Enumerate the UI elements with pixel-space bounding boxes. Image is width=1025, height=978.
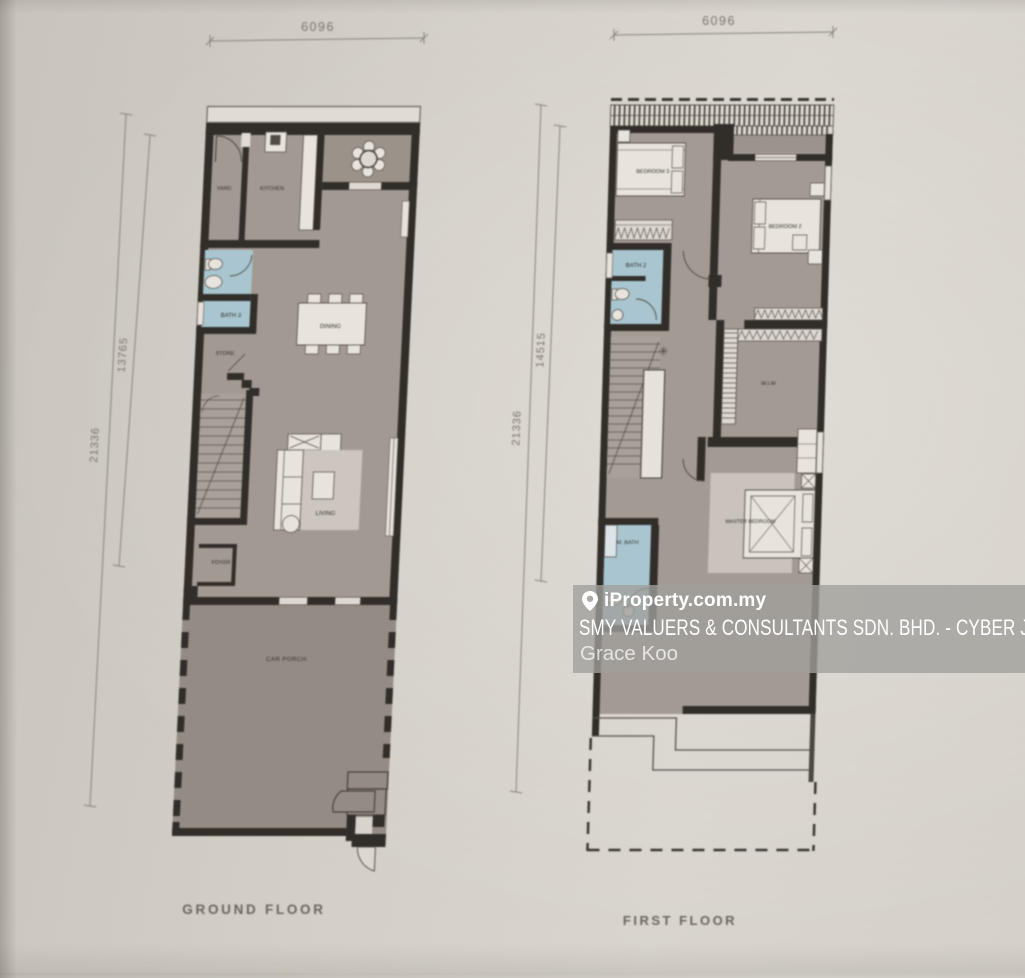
svg-text:BATH 3: BATH 3 (221, 313, 242, 319)
svg-text:M. BATH: M. BATH (617, 540, 639, 546)
svg-text:BEDROOM 2: BEDROOM 2 (769, 224, 802, 230)
svg-text:21336: 21336 (510, 410, 523, 446)
svg-text:6096: 6096 (702, 14, 736, 28)
svg-text:MASTER BEDROOM: MASTER BEDROOM (725, 519, 775, 525)
svg-text:14515: 14515 (534, 332, 548, 368)
svg-text:LIVING: LIVING (315, 511, 335, 517)
svg-text:W.I.W: W.I.W (761, 381, 777, 387)
svg-text:KITCHEN: KITCHEN (260, 186, 284, 192)
svg-text:DINING: DINING (320, 324, 342, 330)
svg-text:21336: 21336 (88, 427, 102, 463)
svg-text:FIRST FLOOR: FIRST FLOOR (623, 913, 737, 928)
svg-text:BATH 2: BATH 2 (626, 263, 647, 269)
svg-text:GROUND FLOOR: GROUND FLOOR (182, 902, 325, 917)
svg-text:STORE: STORE (216, 351, 235, 357)
svg-text:CAR PORCH.: CAR PORCH. (266, 657, 309, 663)
svg-text:6096: 6096 (301, 20, 335, 34)
svg-text:BEDROOM 3: BEDROOM 3 (636, 169, 669, 175)
svg-text:YARD: YARD (216, 186, 231, 192)
svg-text:13765: 13765 (116, 337, 130, 373)
svg-text:FOYER: FOYER (211, 560, 230, 566)
